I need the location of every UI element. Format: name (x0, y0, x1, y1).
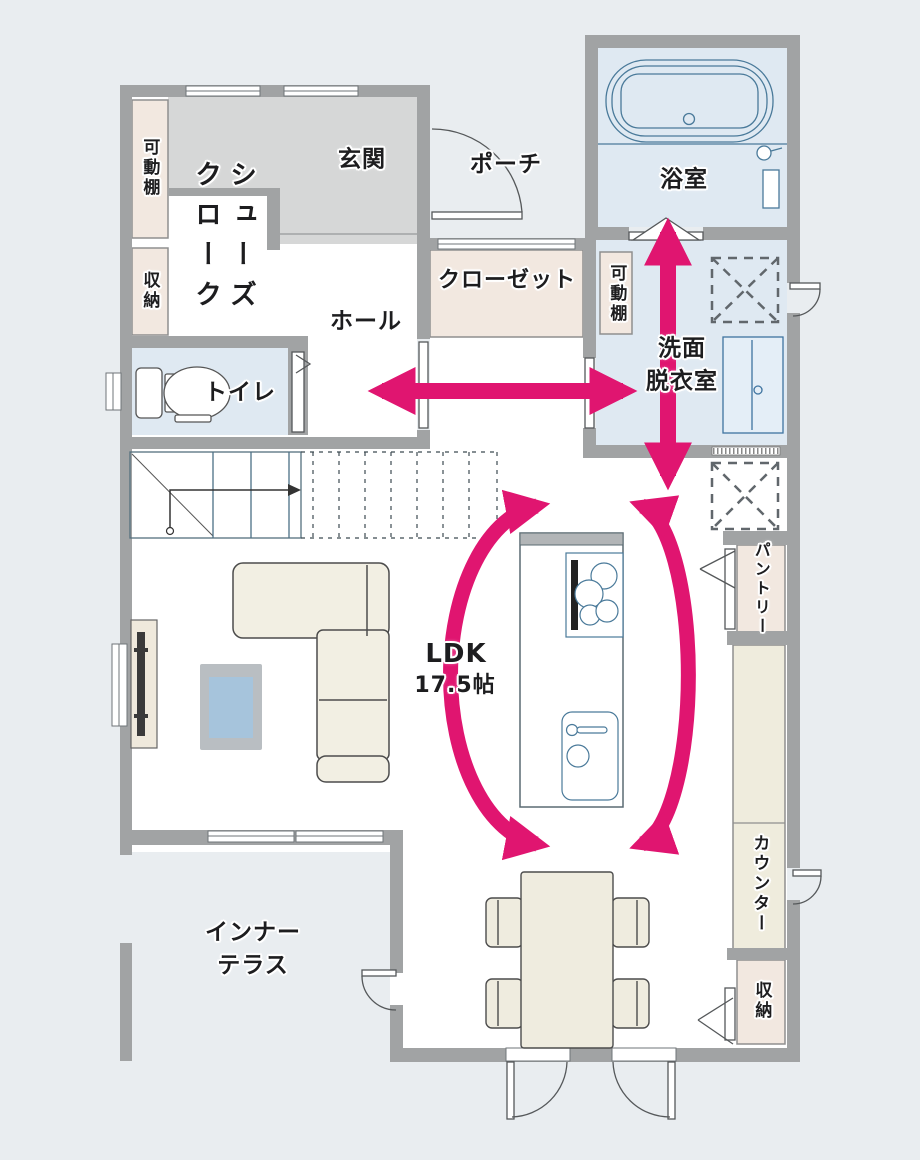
label-counter: カウンター (750, 834, 769, 934)
label-bathroom: 浴室 (660, 163, 708, 196)
vent-strip (712, 447, 780, 455)
label-hall: ホール (330, 305, 402, 338)
kitchen-island (520, 533, 623, 807)
dining-chair (612, 898, 649, 947)
sink (562, 712, 618, 800)
label-entrance: 玄関 (338, 143, 386, 176)
dining-chair (486, 979, 523, 1028)
label-pantry: パントリー (752, 542, 770, 637)
label-storage-ldk: 収納 (752, 981, 771, 1021)
floor-plan-drawing (0, 0, 920, 1160)
label-ldk: LDK (425, 636, 486, 674)
label-porch: ポーチ (470, 148, 542, 181)
floor-plan: 玄関 シューズ クローク 可動棚 収納 ホール トイレ ポーチ 浴室 クローゼッ… (0, 0, 920, 1160)
dining-chair (612, 979, 649, 1028)
cooktop (566, 553, 623, 637)
low-table (200, 664, 262, 750)
vanity-cabinet (723, 337, 783, 433)
label-closet: クローゼット (438, 265, 576, 297)
label-washroom: 洗面 脱衣室 (646, 333, 718, 400)
tv (137, 632, 145, 736)
label-storage-entrance: 収納 (140, 271, 159, 311)
dining-chair (486, 898, 523, 947)
ldk-east-door (793, 870, 821, 904)
label-movable-shelf-washroom: 可動棚 (607, 264, 626, 324)
label-ldk-size: 17.5帖 (414, 670, 495, 702)
washroom-exterior-door (790, 283, 820, 316)
dining-table (521, 872, 613, 1048)
garden-double-doors (507, 1062, 675, 1119)
label-inner-terrace: インナー テラス (205, 917, 301, 984)
label-shoe-closet: シューズ クローク (188, 160, 258, 320)
tv-board (131, 620, 157, 748)
label-movable-shelf-entrance: 可動棚 (140, 138, 159, 198)
label-toilet: トイレ (204, 376, 276, 409)
